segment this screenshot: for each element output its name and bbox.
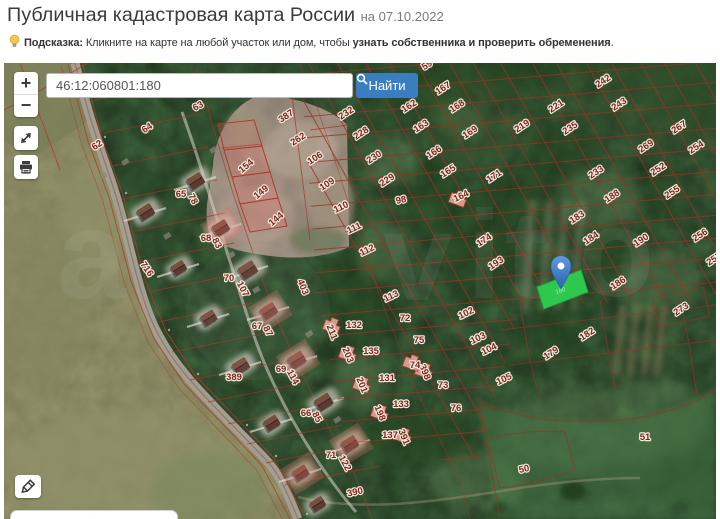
svg-text:98: 98 <box>395 194 408 207</box>
svg-text:133: 133 <box>393 399 409 410</box>
svg-text:74: 74 <box>410 360 421 371</box>
svg-text:72: 72 <box>400 313 411 324</box>
svg-text:131: 131 <box>379 373 396 384</box>
svg-text:o: o <box>578 184 654 323</box>
svg-text:137: 137 <box>382 430 398 441</box>
svg-text:v: v <box>383 188 453 327</box>
svg-text:76: 76 <box>451 403 462 414</box>
svg-text:i: i <box>467 186 502 325</box>
svg-text:71: 71 <box>326 450 337 461</box>
svg-text:67: 67 <box>252 321 263 332</box>
svg-text:68: 68 <box>201 233 212 244</box>
svg-text:66: 66 <box>301 408 312 419</box>
svg-text:a: a <box>57 186 128 325</box>
svg-text:70: 70 <box>224 273 235 284</box>
svg-text:389: 389 <box>226 372 242 383</box>
svg-text:50: 50 <box>518 463 531 476</box>
svg-text:51: 51 <box>640 432 651 443</box>
svg-text:73: 73 <box>438 380 449 391</box>
svg-text:t: t <box>505 186 547 325</box>
svg-text:65: 65 <box>176 189 187 200</box>
svg-text:135: 135 <box>363 346 380 357</box>
svg-text:132: 132 <box>346 320 362 331</box>
svg-text:75: 75 <box>414 335 425 346</box>
